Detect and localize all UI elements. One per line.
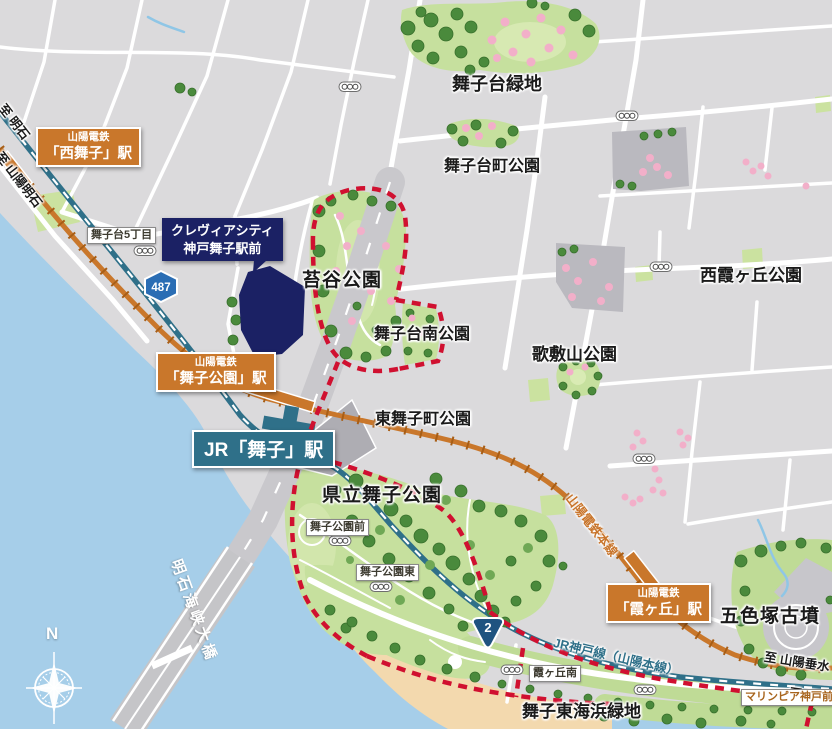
signal-label-kasumigaoka-minami: 霞ヶ丘南 [529,665,581,682]
park-label-maikodai-ryokuchi: 舞子台緑地 [452,70,542,96]
park-label-maiko-higashi-kaihin: 舞子東海浜緑地 [522,697,641,722]
park-label-maikodai-cho: 舞子台町公園 [444,152,540,176]
signal-label-maiko-koen-mae: 舞子公園前 [306,519,369,536]
park-label-goshikizuka: 五色塚古墳 [720,601,820,628]
traffic-signal-icon [634,685,656,695]
park-label-nishi-kasumigaoka: 西霞ヶ丘公園 [700,261,802,286]
station-label-jr-maiko: JR「舞子」駅 [192,430,335,468]
station-label-maiko-koen: 山陽電鉄 「舞子公園」駅 [156,352,276,392]
signal-label-marinpia-kobe-mae: マリンピア神戸前 [741,689,832,706]
traffic-signal-icon [329,536,351,546]
landmark-line1: クレヴィアシティ [171,222,274,240]
svg-text:2: 2 [484,620,491,635]
traffic-signal-icon [650,262,672,272]
traffic-signal-icon [339,82,361,92]
traffic-signal-icon [501,665,523,675]
route-487-badge: 487 [145,271,177,302]
traffic-signal-icon [134,246,156,256]
maiko-area-map: 487 2 舞子台緑地 舞子台町公園 西霞ヶ丘公園 苔谷公園 舞子台南公園 歌敷… [0,0,832,729]
compass-north-label: N [46,624,58,644]
station-name: 「西舞子」駅 [45,145,132,164]
landmark-line2: 神戸舞子駅前 [171,240,274,258]
station-company: 山陽電鉄 [615,587,702,601]
station-company: 山陽電鉄 [165,356,267,370]
park-label-maikodai-minami: 舞子台南公園 [374,320,470,344]
park-label-utashikiyama: 歌敷山公園 [532,340,617,365]
station-name: 「霞ヶ丘」駅 [615,601,702,620]
station-label-nishi-maiko: 山陽電鉄 「西舞子」駅 [36,127,141,167]
traffic-signal-icon [616,111,638,121]
park-label-kenritsu-maiko: 県立舞子公園 [322,480,442,507]
traffic-signal-icon [633,454,655,464]
signal-label-maikodai5: 舞子台5丁目 [87,227,156,244]
traffic-signal-icon [370,582,392,592]
station-company: 山陽電鉄 [45,131,132,145]
park-label-kokedani: 苔谷公園 [302,265,382,292]
signal-label-maiko-koen-higashi: 舞子公園東 [356,564,419,581]
park-label-higashi-maikocho: 東舞子町公園 [375,405,471,429]
svg-text:487: 487 [151,282,170,294]
landmark-callout-crevia: クレヴィアシティ 神戸舞子駅前 [162,218,283,261]
station-label-kasumigaoka: 山陽電鉄 「霞ヶ丘」駅 [606,583,711,623]
station-name: 「舞子公園」駅 [165,370,267,389]
